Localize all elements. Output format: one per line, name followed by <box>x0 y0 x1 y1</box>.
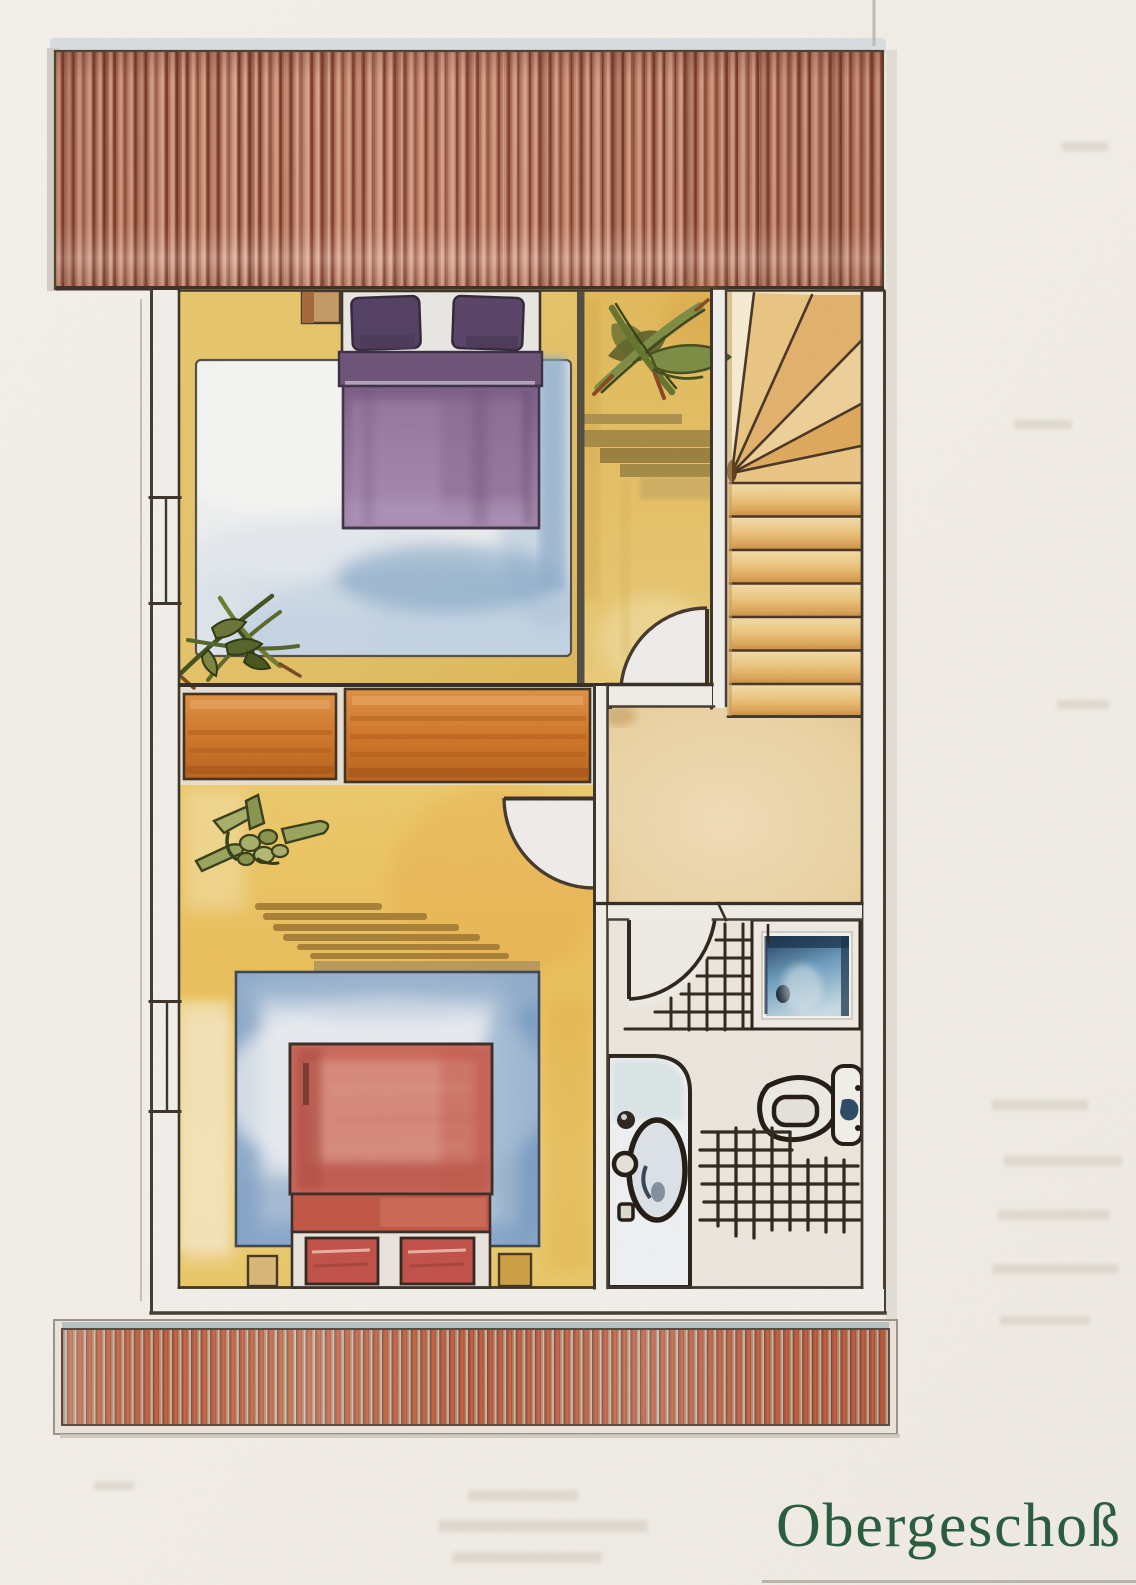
svg-text:Obergeschoß: Obergeschoß <box>776 1492 1122 1560</box>
